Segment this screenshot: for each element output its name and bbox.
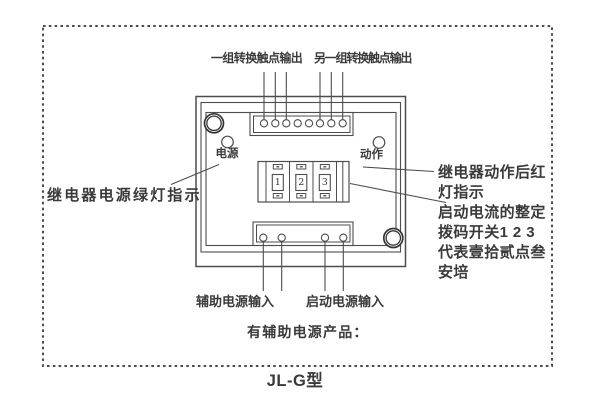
dip-digit-2: 2: [296, 175, 307, 191]
relay-diagram-page: 一组转换触点输出 另一组转换触点输出 电源 动作 继电器电源绿灯指示 继电器动作…: [0, 0, 600, 400]
terminal-top-2: [272, 120, 279, 127]
label-contact-group-1: 一组转换触点输出: [211, 52, 302, 66]
terminal-top-3: [283, 120, 290, 127]
note-right-line: 灯指示: [438, 183, 546, 203]
terminal-top-4: [294, 120, 301, 127]
label-aux-power-input: 辅助电源输入: [196, 295, 274, 310]
dip-digit-3: 3: [319, 175, 330, 191]
terminal-top-5: [305, 120, 312, 127]
note-right-block: 继电器动作后红 灯指示 启动电流的整定 拨码开关1 2 3 代表壹拾贰点叁 安培: [438, 163, 546, 283]
dip-digit-1: 1: [272, 175, 283, 191]
note-right-line: 拨码开关1 2 3: [438, 223, 546, 243]
label-contact-group-2: 另一组转换触点输出: [314, 52, 411, 66]
terminal-bottom-2: [278, 234, 285, 241]
note-right-line: 安培: [438, 263, 546, 283]
terminal-bottom-4: [340, 234, 347, 241]
label-start-power-input: 启动电源输入: [306, 295, 384, 310]
label-power-led: 电源: [216, 148, 239, 161]
action-led-circle: [373, 137, 385, 149]
terminal-top-6: [316, 120, 323, 127]
terminal-top-7: [328, 120, 335, 127]
power-led-circle: [222, 136, 234, 148]
note-right-line: 启动电流的整定: [438, 203, 546, 223]
page-title: JL-G型: [248, 372, 342, 391]
note-product: 有辅助电源产品：: [247, 324, 369, 340]
terminal-bottom-1: [260, 234, 267, 241]
note-right-line: 继电器动作后红: [438, 163, 546, 183]
terminal-top-8: [339, 120, 346, 127]
note-green-led: 继电器电源绿灯指示: [47, 187, 202, 204]
terminal-top-1: [260, 120, 267, 127]
note-right-line: 代表壹拾贰点叁: [438, 243, 546, 263]
label-action-led: 动作: [360, 149, 383, 162]
terminal-bottom-3: [321, 234, 328, 241]
